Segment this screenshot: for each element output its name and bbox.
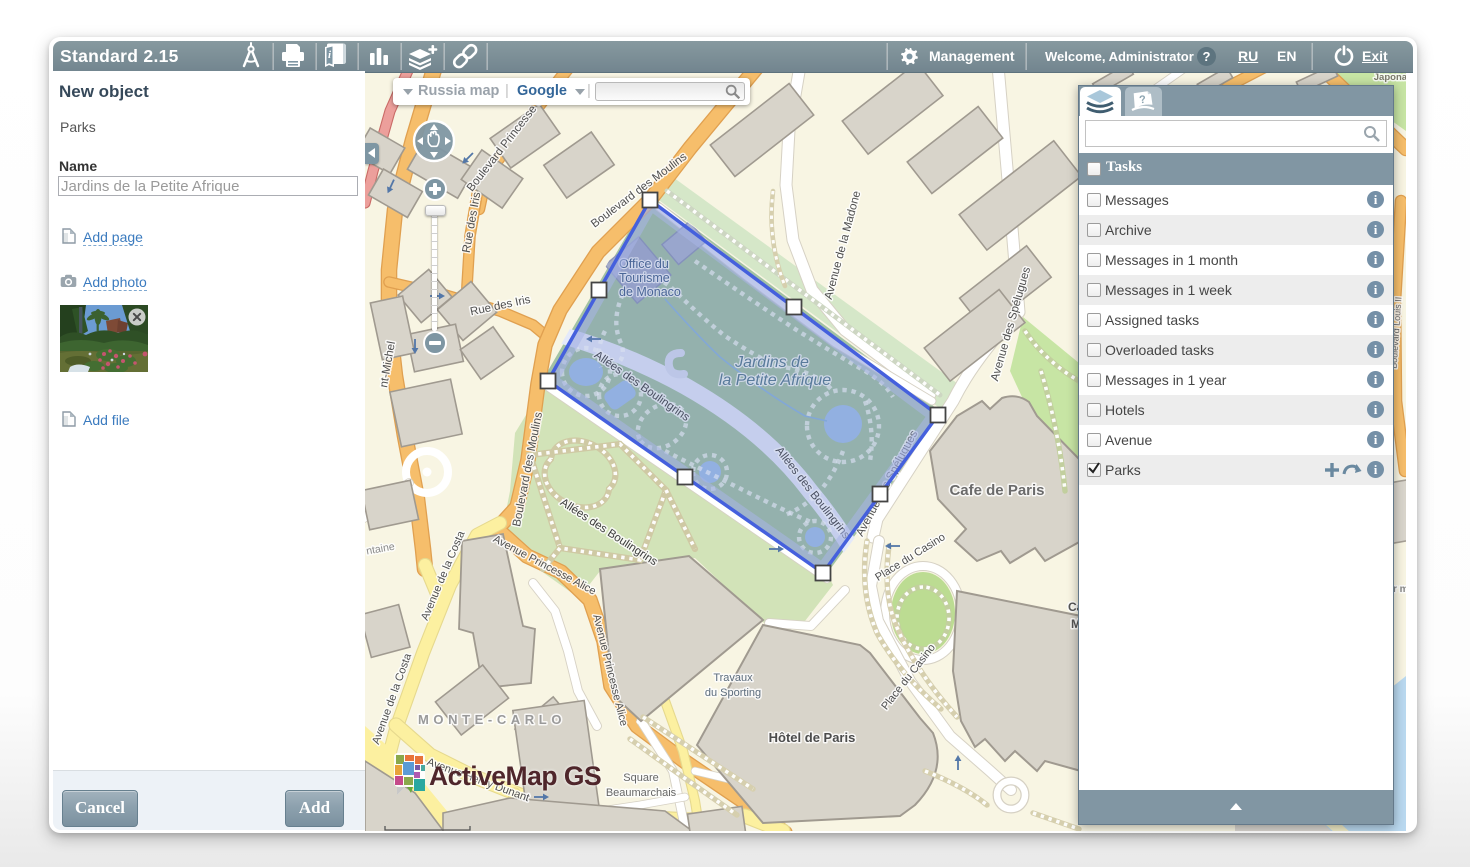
svg-text:Hôtel de Paris: Hôtel de Paris — [769, 730, 856, 745]
svg-text:ActiveMap GS: ActiveMap GS — [429, 761, 601, 791]
svg-text:Cafe de Paris: Cafe de Paris — [949, 482, 1044, 499]
svg-text:r m: r m — [1393, 584, 1406, 595]
svg-text:du Sporting: du Sporting — [705, 687, 761, 699]
svg-text:Travaux: Travaux — [713, 672, 753, 684]
svg-text:MONTE-CARLO: MONTE-CARLO — [418, 712, 566, 727]
svg-text:Japonaise: Japonaise — [1374, 72, 1406, 83]
